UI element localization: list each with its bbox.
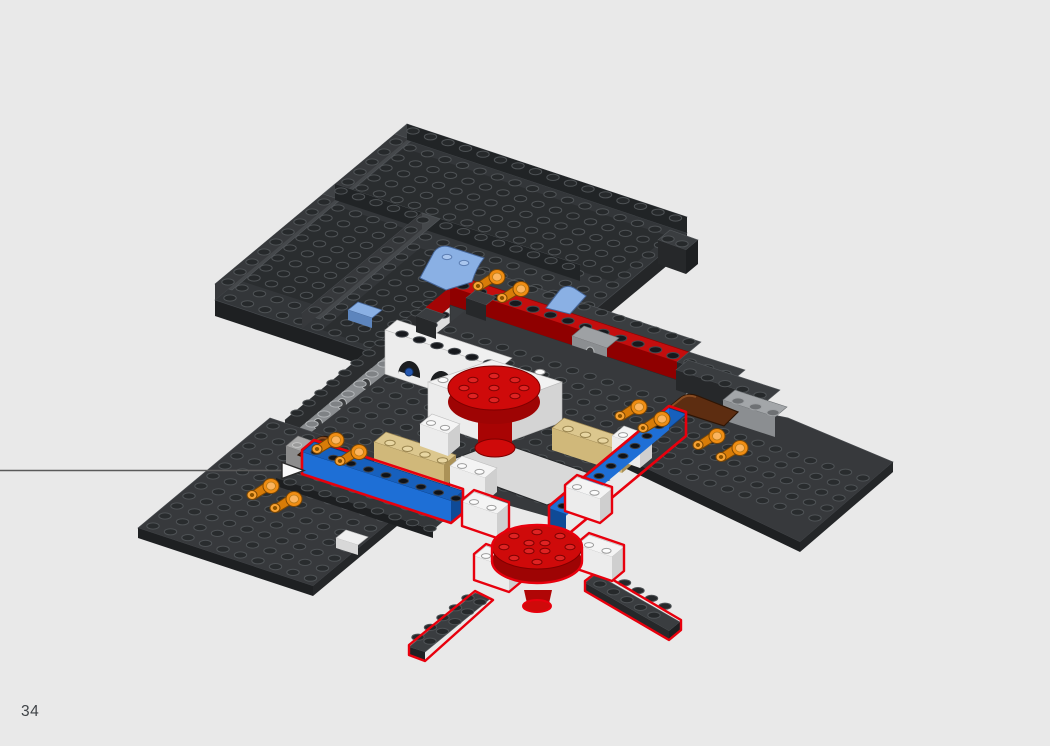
instruction-page: 34 (0, 0, 1050, 746)
page-number: 34 (21, 703, 39, 721)
cross-arm-west (409, 591, 493, 661)
lego-model-render (0, 0, 1050, 746)
cross-white-brick-se (577, 533, 624, 581)
red-round-dish-lower (492, 525, 582, 612)
dish-studs (459, 373, 529, 403)
cross-arm-east (585, 571, 681, 640)
